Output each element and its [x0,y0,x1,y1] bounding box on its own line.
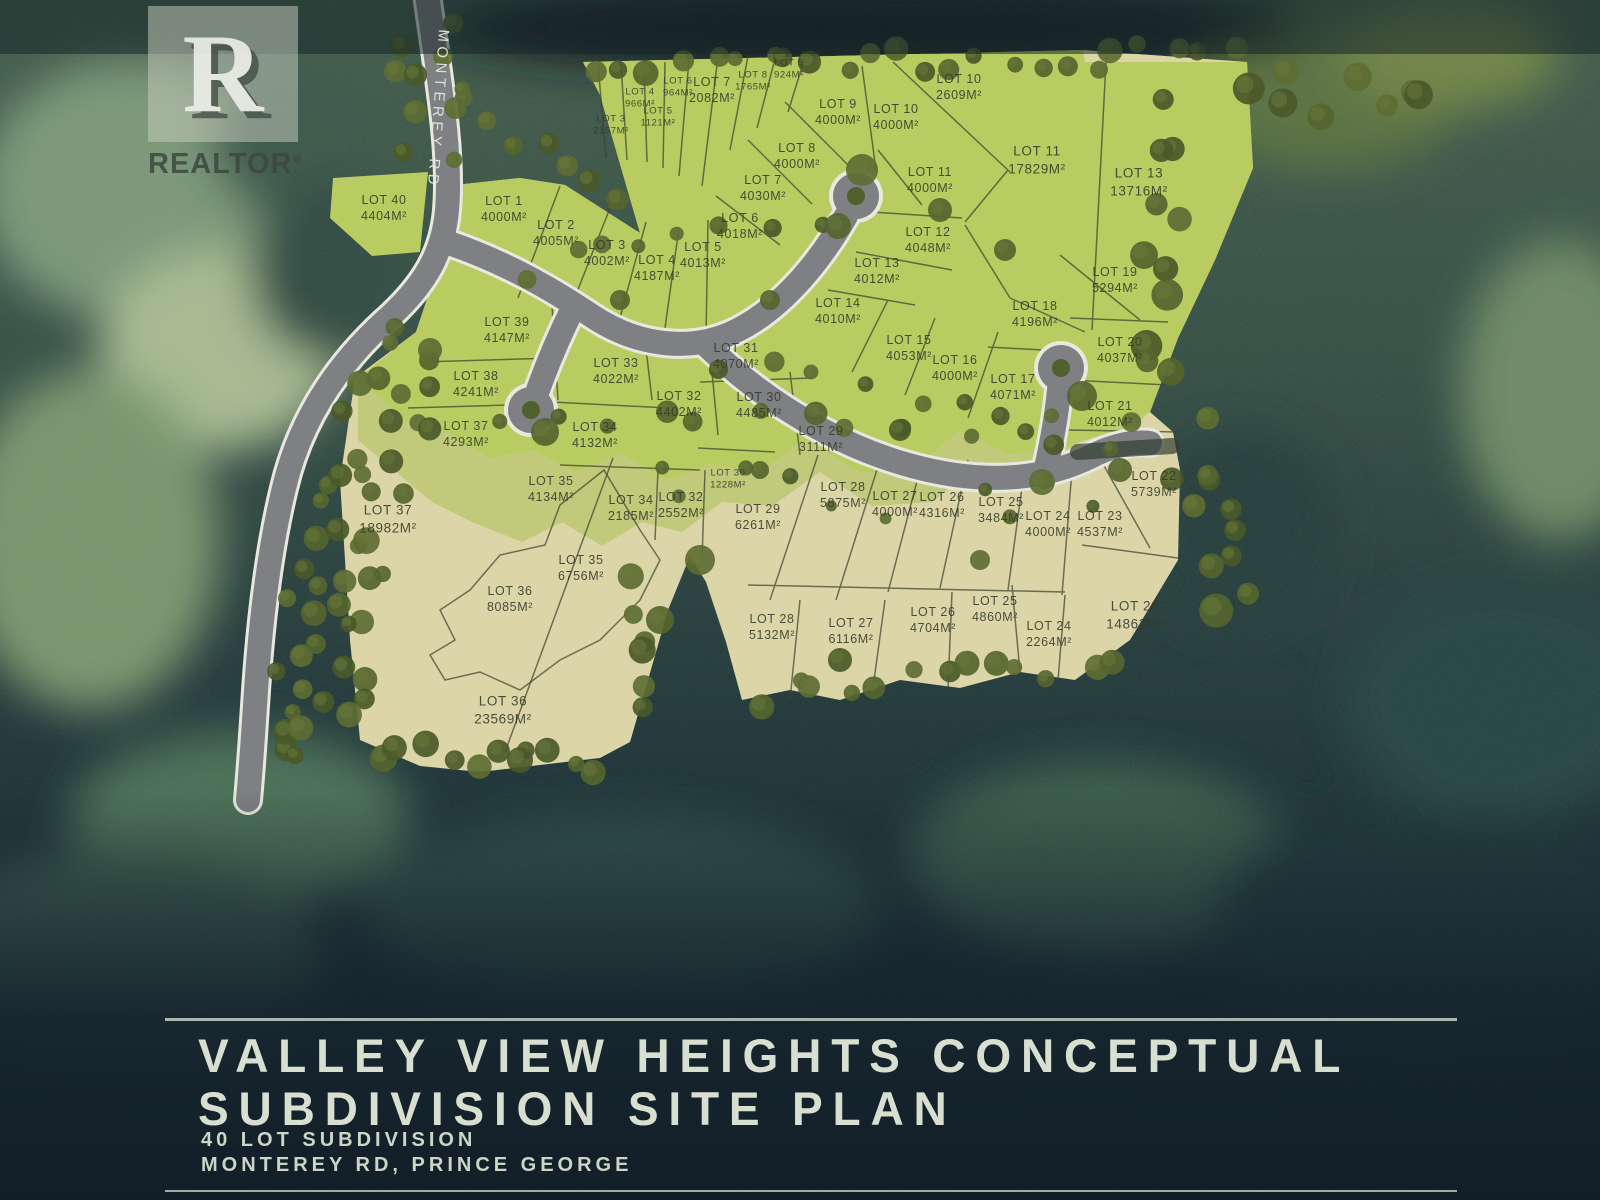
plan-subtitle-location: MONTEREY RD, PRINCE GEORGE [201,1154,632,1177]
cul-de-sac-island [522,401,540,419]
realtor-logo-text: REALTOR® [148,148,298,181]
plan-title-line1: VALLEY VIEW HEIGHTS CONCEPTUAL [198,1028,1350,1083]
title-divider-top [165,1018,1457,1021]
cul-de-sac-island [1052,359,1070,377]
plan-subtitle-lots: 40 LOT SUBDIVISION [201,1129,476,1152]
title-divider-bottom [165,1190,1457,1192]
shaded-road-segment [1078,446,1172,452]
realtor-logo: R REALTOR® [148,6,298,181]
internal-road-east-stub [1044,390,1059,477]
realtor-r-icon: R [183,18,264,130]
site-plan-page: R REALTOR® MONTEREY RD LOT 32157M²LOT 49… [0,0,1600,1200]
registered-mark: ® [292,151,302,165]
plan-title-line2: SUBDIVISION SITE PLAN [198,1081,957,1136]
realtor-logo-box: R [148,6,298,142]
cul-de-sac-island [847,187,865,205]
